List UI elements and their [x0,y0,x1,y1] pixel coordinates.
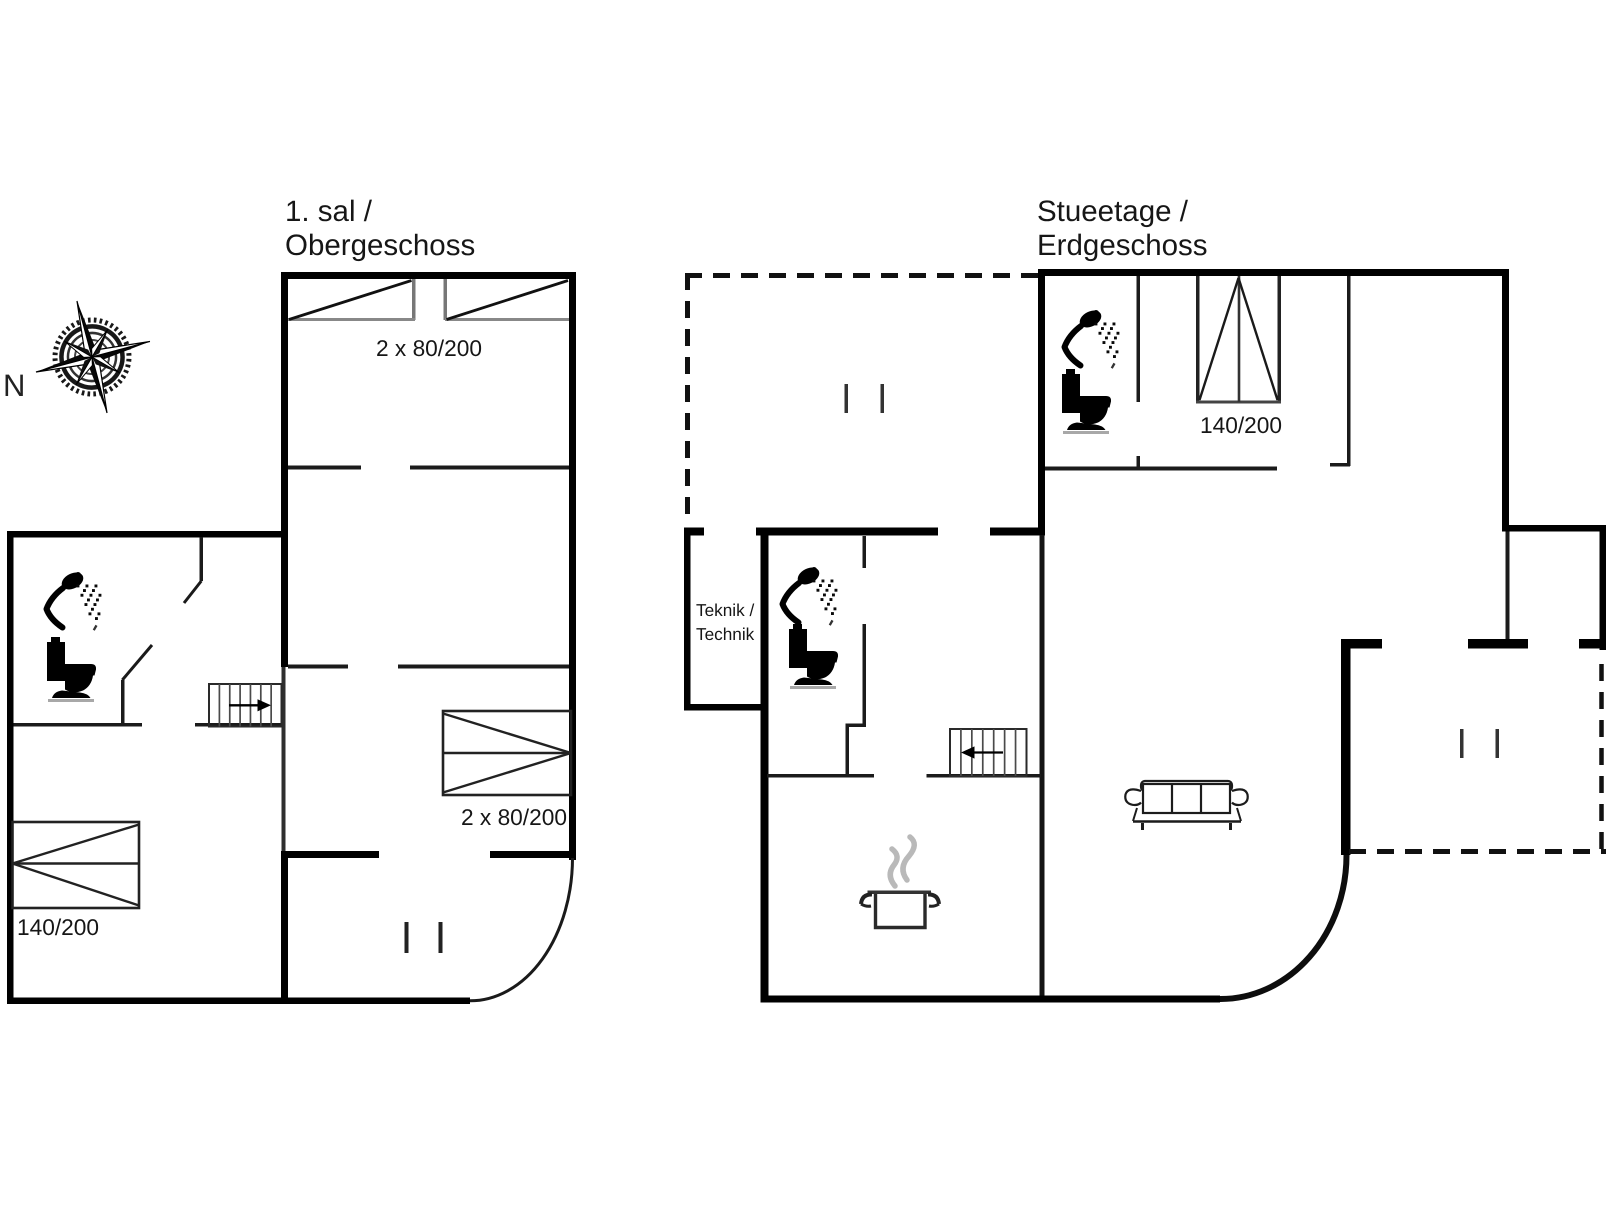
svg-text:140/200: 140/200 [1200,412,1282,438]
svg-text:Teknik /: Teknik / [696,600,755,620]
svg-text:2 x 80/200: 2 x 80/200 [376,335,482,361]
svg-text:N: N [3,368,25,403]
svg-text:Obergeschoss: Obergeschoss [285,229,475,262]
svg-text:Stueetage /: Stueetage / [1037,195,1189,228]
svg-text:1. sal /: 1. sal / [285,195,373,228]
svg-text:2 x 80/200: 2 x 80/200 [461,804,567,830]
svg-text:Erdgeschoss: Erdgeschoss [1037,229,1208,262]
svg-text:140/200: 140/200 [17,914,99,940]
svg-text:Technik: Technik [696,624,755,644]
